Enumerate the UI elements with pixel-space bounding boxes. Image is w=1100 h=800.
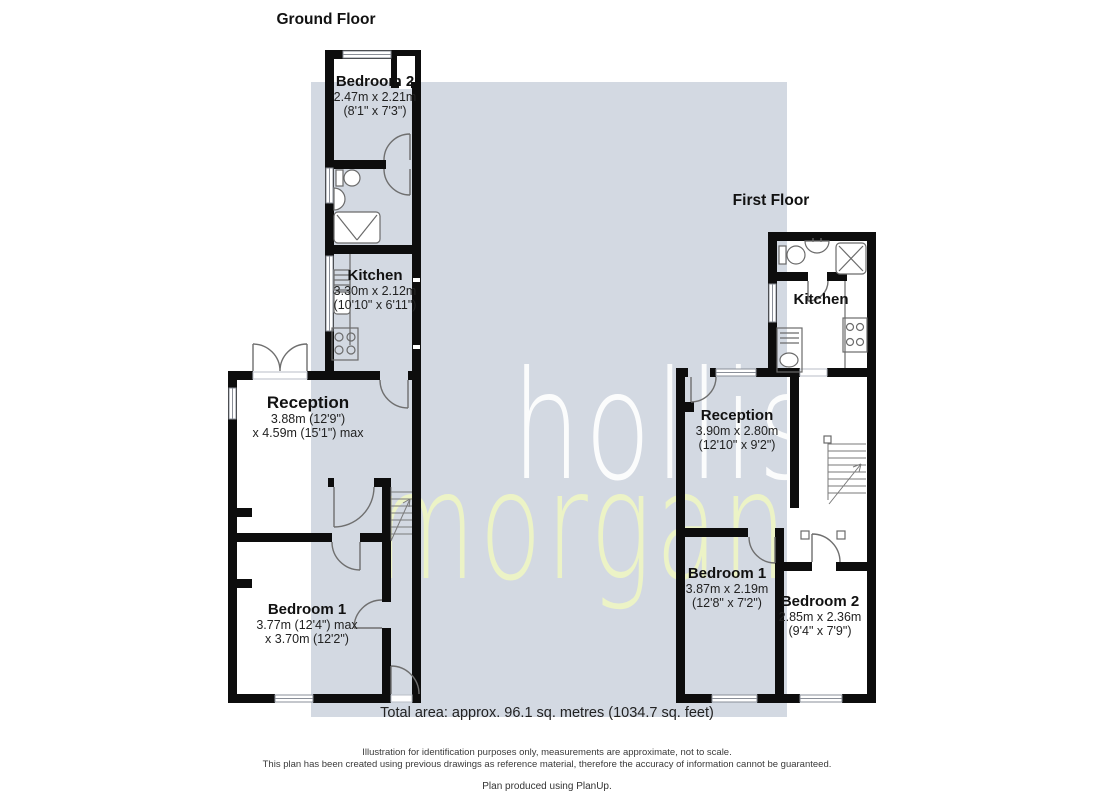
ground-reception-label: Reception 3.88m (12'9") x 4.59m (15'1") … — [252, 394, 363, 440]
sink-icon — [334, 188, 345, 210]
first-bedroom1-label: Bedroom 1 3.87m x 2.19m (12'8" x 7'2") — [686, 566, 769, 610]
first-stairs-icon — [824, 436, 866, 504]
stove-icon — [843, 318, 867, 352]
landing-threshold — [800, 369, 827, 376]
first-bedroom2-label: Bedroom 2 2.85m x 2.36m (9'4" x 7'9") — [779, 594, 862, 638]
toilet-icon — [779, 246, 786, 264]
ground-kitchen-label: Kitchen 3.30m x 2.12m (10'10" x 6'11") — [334, 268, 417, 312]
ground-stairs-icon — [391, 487, 412, 541]
first-bedroom2-door-icon — [812, 534, 840, 562]
floorplan-page: hollis morgan — [0, 0, 1100, 800]
sink-icon — [805, 241, 829, 253]
bathroom-door-icon — [384, 169, 410, 195]
stove-icon — [332, 328, 358, 360]
first-bathroom-fixtures — [779, 238, 866, 274]
door-post-icon — [801, 531, 809, 539]
disclaimer-line2: This plan has been created using previou… — [263, 759, 832, 771]
first-floor-title: First Floor — [733, 192, 810, 210]
first-kitchen-label: Kitchen — [793, 292, 848, 308]
toilet-icon — [336, 170, 343, 186]
shower-icon — [334, 212, 380, 243]
ground-bathroom-fixtures — [334, 170, 380, 243]
planup-credit: Plan produced using PlanUp. — [482, 781, 612, 792]
patio-door-threshold — [253, 372, 307, 379]
ground-bedroom2-label: Bedroom 2 2.47m x 2.21m (8'1" x 7'3") — [334, 74, 417, 118]
total-area-text: Total area: approx. 96.1 sq. metres (103… — [380, 705, 714, 721]
first-reception-door-icon — [691, 377, 716, 402]
first-reception-label: Reception 3.90m x 2.80m (12'10" x 9'2") — [696, 408, 779, 452]
ground-bedroom1-label: Bedroom 1 3.77m (12'4") max x 3.70m (12'… — [256, 602, 357, 646]
bedroom2-door-icon — [384, 134, 410, 160]
bedroom1-door-icon — [332, 542, 360, 570]
bedroom1-rear-door-icon — [354, 600, 382, 628]
patio-double-doors-icon — [253, 344, 307, 371]
first-bedroom1-door-icon — [749, 537, 775, 563]
door-post-icon — [837, 531, 845, 539]
floorplan-drawing — [0, 0, 1100, 800]
front-door-threshold — [391, 695, 412, 702]
ground-floor-title: Ground Floor — [276, 11, 375, 29]
kitchen-door-icon — [380, 380, 408, 408]
hall-door-icon — [334, 487, 374, 527]
disclaimer-line1: Illustration for identification purposes… — [362, 747, 731, 759]
